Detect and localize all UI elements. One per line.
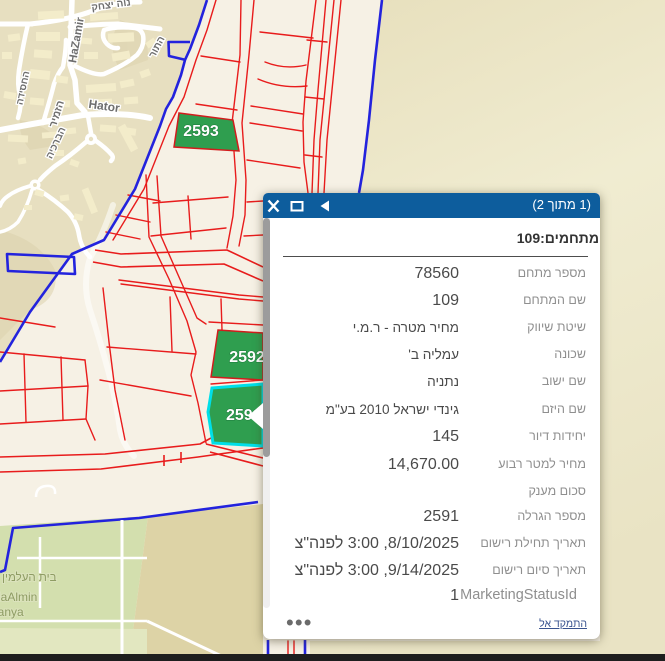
svg-text:בית העלמין: בית העלמין xyxy=(2,571,57,584)
svg-text:Netanya: Netanya xyxy=(0,605,24,619)
svg-text:2592: 2592 xyxy=(229,349,265,366)
svg-text:2593: 2593 xyxy=(183,123,219,140)
svg-text:Beit HaAlmin: Beit HaAlmin xyxy=(0,590,37,604)
